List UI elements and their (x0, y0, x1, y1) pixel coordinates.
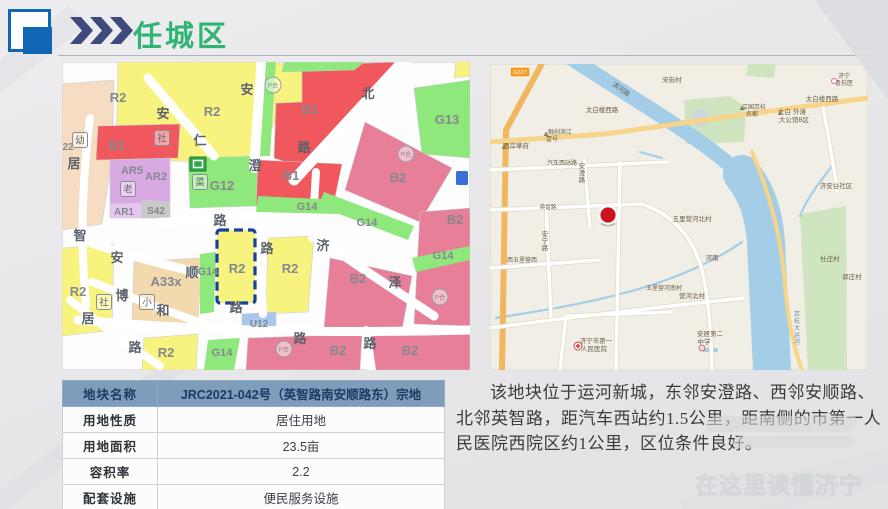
parcel-label: G13 (435, 112, 460, 127)
parcel-label: B1 (109, 138, 126, 153)
road-name-char: 路 (260, 241, 274, 256)
road-name-char: 安 (240, 82, 253, 97)
zoning-parcel (370, 332, 470, 370)
map-label: 名都 (746, 110, 758, 118)
map-label: 壹号 (546, 135, 558, 143)
table-header-label: 地块名称 (63, 381, 158, 407)
map-label: 大公馆B区 (779, 115, 810, 124)
location-marker (600, 207, 615, 222)
parcel-label: G14 (357, 217, 379, 229)
parking-icon-label: P合 (268, 81, 279, 90)
parcel-label: G14 (297, 201, 319, 213)
parcel-label: AR1 (114, 207, 134, 218)
zoning-road (258, 210, 263, 314)
logo-solid-square (23, 27, 52, 54)
parcel-label: A33x (150, 274, 182, 289)
road-name-char: 北 (361, 86, 374, 101)
map-label: 安居第二 (697, 329, 724, 338)
road-name-char: 居 (67, 156, 80, 171)
map-label: 济宁 (838, 72, 850, 80)
road-name-char: 路 (363, 336, 377, 351)
zoning-parcel (454, 62, 470, 78)
map-label: 太白楼西路 (586, 105, 619, 114)
park-area (800, 206, 847, 370)
table-cell-value: 居住用地 (158, 407, 445, 433)
road-name-char: 路 (229, 300, 243, 315)
table-row: 配套设施 便民服务设施 (63, 485, 445, 509)
table-row: 用地面积 23.5亩 (63, 433, 445, 459)
poi-circle-icon (832, 79, 837, 84)
parcel-label: G12 (210, 178, 235, 193)
road-name-char: 路 (293, 331, 307, 346)
parcel-label: R2 (204, 104, 221, 119)
facility-icon-label: 老 (123, 184, 133, 196)
map-label: 太白楼西路 (806, 94, 839, 103)
location-map: 宋街村滨河路济宁鲁抗医太白楼西路太白楼西路立国京杭名都太白·外滩大公馆B区融创滨… (490, 64, 868, 370)
table-header-value: JRC2021-042号（英智路南安顺路东）宗地 (158, 381, 445, 407)
parcel-label: B1 (302, 102, 319, 117)
header-divider (58, 55, 876, 56)
parking-icon-label: P合 (435, 293, 446, 302)
road-name-char: 路 (128, 340, 142, 355)
parcel-label: B1 (283, 168, 300, 183)
school-icon (190, 157, 206, 171)
watermark-text: 在这里读懂济宁 (695, 466, 863, 500)
parcel-label: G14 (198, 266, 220, 278)
zoning-green-strip (200, 252, 216, 314)
map-label: 融创滨江 (548, 128, 572, 136)
map-label: 安宁路 (542, 229, 549, 252)
location-description: 该地块位于运河新城，东邻安澄路、西邻安顺路、北邻英智路，距汽车西站约1.5公里，… (456, 380, 884, 457)
map-label: 汽车西站路 (547, 159, 577, 167)
chevron-icon (90, 17, 113, 44)
slide: 任城区 R2R2B1G12B1G13B2B1AR5AR2AR1S42R2A33x… (0, 0, 888, 509)
zoning-map-svg: R2R2B1G12B1G13B2B1AR5AR2AR1S42R2A33xG14G… (62, 62, 470, 370)
road-name-char: 济 (316, 238, 330, 253)
table-row: 用地性质 居住用地 (63, 407, 445, 433)
chevron-icon (70, 17, 93, 44)
parcel-label: R2 (70, 284, 87, 299)
map-label: 中学 (698, 337, 712, 346)
map-label: 立国京杭 (742, 103, 766, 111)
parcel-label: B2 (447, 212, 464, 227)
location-map-svg: 宋街村滨河路济宁鲁抗医太白楼西路太白楼西路立国京杭名都太白·外滩大公馆B区融创滨… (490, 64, 868, 370)
road-sign-icon (456, 171, 468, 185)
parcel-label: R2 (229, 261, 246, 276)
map-label: 鲁抗医 (835, 79, 853, 87)
parcel-label: G14 (212, 347, 234, 359)
table-cell-value: 2.2 (158, 459, 445, 485)
map-label: 人民医院 (581, 344, 608, 353)
road-name-char: 安 (110, 250, 123, 265)
table-cell-value: 便民服务设施 (158, 485, 445, 509)
table-cell-label: 用地面积 (63, 433, 158, 459)
route-shield-label: G327 (513, 70, 526, 76)
road-name-char: 路 (297, 140, 311, 155)
parcel-label: G14 (433, 250, 455, 262)
table-row: 地块名称 JRC2021-042号（英智路南安顺路东）宗地 (63, 381, 445, 407)
chevron-icon (110, 17, 133, 44)
map-label: 英智路 (540, 203, 557, 211)
map-label: 京杭大运河 (794, 310, 800, 346)
parcel-label: R2 (282, 261, 299, 276)
map-label: 杜庄村 (820, 254, 840, 263)
hospital-cross (577, 344, 579, 348)
table-cell-value: 23.5亩 (158, 433, 445, 459)
map-label: 营河北村 (679, 291, 706, 300)
map-label: 五里营河北村 (673, 214, 713, 223)
map-label: 太白·外滩 (778, 107, 807, 116)
road-name-char: 博 (115, 288, 128, 303)
map-label: 西岸華府 (503, 141, 530, 150)
road-name-char: 顺 (185, 265, 198, 280)
parcel-label: R2 (110, 90, 127, 105)
table-row: 容积率 2.2 (63, 459, 445, 485)
parcel-label: AR5 (121, 165, 143, 177)
map-label: 西五里营西 (507, 256, 537, 264)
road-name-char: 泽 (388, 275, 402, 290)
table-cell-label: 配套设施 (63, 485, 158, 509)
road-name-char: 和 (156, 303, 169, 318)
parcel-info-table: 地块名称 JRC2021-042号（英智路南安顺路东）宗地 用地性质 居住用地 … (62, 380, 445, 509)
road-name-char: 仁 (193, 133, 206, 148)
road-name-char: 澄 (248, 158, 262, 173)
map-label: 郭庄村 (842, 272, 862, 281)
road-name-char: 安 (156, 106, 169, 121)
parking-icon-label: P合 (279, 345, 290, 354)
zoning-map: R2R2B1G12B1G13B2B1AR5AR2AR1S42R2A33xG14G… (62, 62, 470, 370)
road-name-char: 路 (213, 213, 227, 228)
park-area (746, 64, 776, 78)
facility-icon-label: 社 (157, 133, 167, 145)
school-poi-icon (699, 345, 705, 351)
map-label: 安澄路 (579, 161, 586, 184)
map-label: 宋街村 (662, 75, 682, 84)
road-name-char: 智 (73, 228, 86, 243)
facility-icon-label: 社 (99, 297, 109, 309)
table-cell-label: 用地性质 (63, 407, 158, 433)
parcel-label: B2 (330, 343, 347, 358)
page-title: 任城区 (133, 13, 229, 55)
map-label: 济宁市第一 (580, 336, 613, 345)
facility-icon-label: 幼 (75, 135, 85, 147)
parcel-label: B2 (350, 271, 367, 286)
road-name-char: 居 (81, 311, 94, 326)
map-label: 河南 (706, 253, 720, 262)
parcel-label: B2 (402, 343, 419, 358)
facility-icon-label: 小 (142, 298, 152, 309)
table-cell-label: 容积率 (63, 459, 158, 485)
parcel-label: B2 (390, 170, 407, 185)
parcel-label: AR2 (145, 171, 167, 183)
parking-icon-label: P合 (401, 150, 412, 159)
facility-icon-label: 菜 (195, 177, 205, 189)
parcel-label: U12 (250, 319, 269, 330)
parcel-label: R2 (158, 345, 175, 360)
map-label: 五里营河南村 (646, 284, 682, 292)
map-label: 济安台社区 (820, 181, 853, 190)
parcel-label: S42 (147, 206, 165, 217)
